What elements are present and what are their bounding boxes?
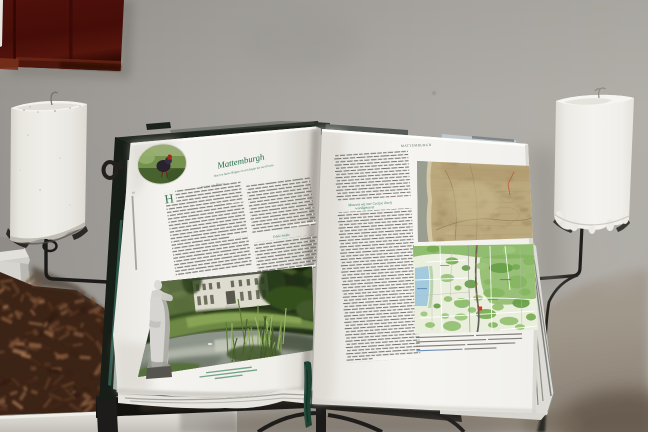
svg-text:H: H <box>164 191 175 206</box>
